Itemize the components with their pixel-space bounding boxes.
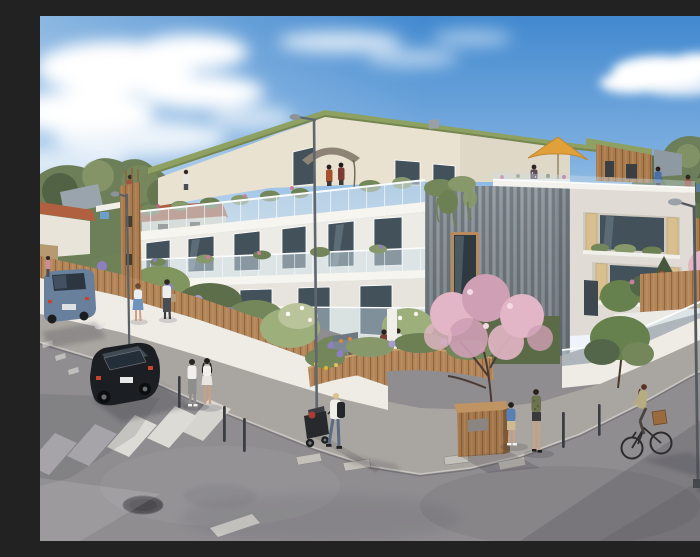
roof-vent <box>429 119 439 129</box>
scene-svg <box>40 16 700 541</box>
loggia-upper <box>583 212 680 259</box>
ground-window-right <box>584 280 598 316</box>
backpack <box>337 402 345 418</box>
rendering-image: Photorealistic architect's rendering of … <box>40 16 700 541</box>
bike-basket <box>652 410 667 425</box>
shopping-bag <box>171 294 176 302</box>
license-plate <box>62 304 76 310</box>
attic-window <box>293 147 314 186</box>
license-plate <box>120 377 133 383</box>
shed-plaque <box>468 418 488 432</box>
